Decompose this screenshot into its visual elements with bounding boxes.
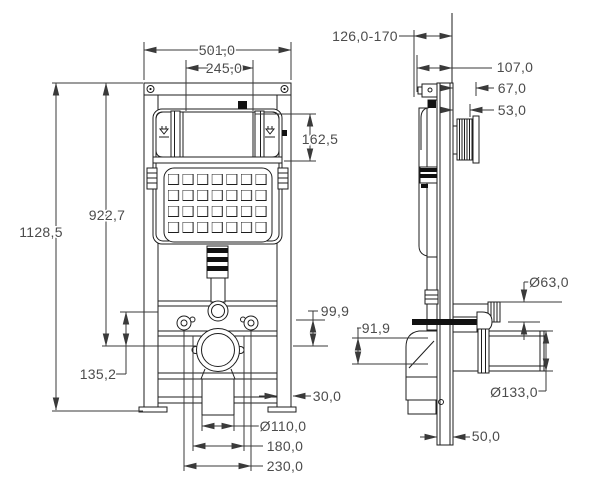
dim-label-1128: 1128,5 xyxy=(19,224,63,240)
cistern-side xyxy=(419,100,437,257)
foot-right xyxy=(268,407,296,412)
frame-clip-left xyxy=(147,168,157,189)
access-grid-panel xyxy=(164,168,272,242)
dim-label-53: 53,0 xyxy=(498,102,526,118)
dim-label-30: 30,0 xyxy=(313,388,341,404)
frame-clip-right xyxy=(278,168,288,189)
dim-label-63: Ø63,0 xyxy=(529,274,569,290)
dim-label-110: Ø110,0 xyxy=(260,418,307,434)
flush-button-port xyxy=(238,101,247,109)
dim-label-67: 67,0 xyxy=(498,80,526,96)
foot-left xyxy=(139,407,167,412)
dim-label-162: 162,5 xyxy=(302,131,339,147)
dim-label-180: 180,0 xyxy=(267,438,304,454)
valve-cap xyxy=(477,312,492,331)
dim-label-230: 230,0 xyxy=(267,458,304,474)
fill-valve-top xyxy=(428,100,436,108)
cistern-frame-drawing: 501,0 245,0 162,5 922,7 1128,5 135,2 xyxy=(0,0,600,500)
pipe-coupling xyxy=(478,329,489,373)
frame-channel xyxy=(437,83,453,445)
dim-label-50: 50,0 xyxy=(472,428,500,444)
dim-label-135: 135,2 xyxy=(80,366,117,382)
cross-rail-3 xyxy=(158,373,277,379)
technical-drawing-canvas: 501,0 245,0 162,5 922,7 1128,5 135,2 xyxy=(0,0,600,500)
cistern-front xyxy=(147,101,288,244)
connector-flange xyxy=(473,116,479,163)
cistern-shelf xyxy=(153,157,282,163)
dim-label-91: 91,9 xyxy=(362,320,390,336)
dim-label-922: 922,7 xyxy=(89,207,126,223)
side-fitting-mark xyxy=(282,130,287,136)
dim-label-501: 501,0 xyxy=(199,42,236,58)
dim-label-245: 245,0 xyxy=(206,60,243,76)
mounting-bar xyxy=(412,319,478,325)
outlet-duct xyxy=(202,379,234,415)
outlet-elbow xyxy=(406,331,437,414)
dim-label-99: 99,9 xyxy=(321,303,349,319)
dim-label-126-170: 126,0-170 xyxy=(332,28,398,44)
outlet-pipe-side xyxy=(453,329,546,373)
service-opening xyxy=(183,112,253,158)
wall-flush-connector xyxy=(453,116,479,163)
dim-label-133: Ø133,0 xyxy=(490,384,538,400)
dim-label-107: 107,0 xyxy=(497,59,534,75)
